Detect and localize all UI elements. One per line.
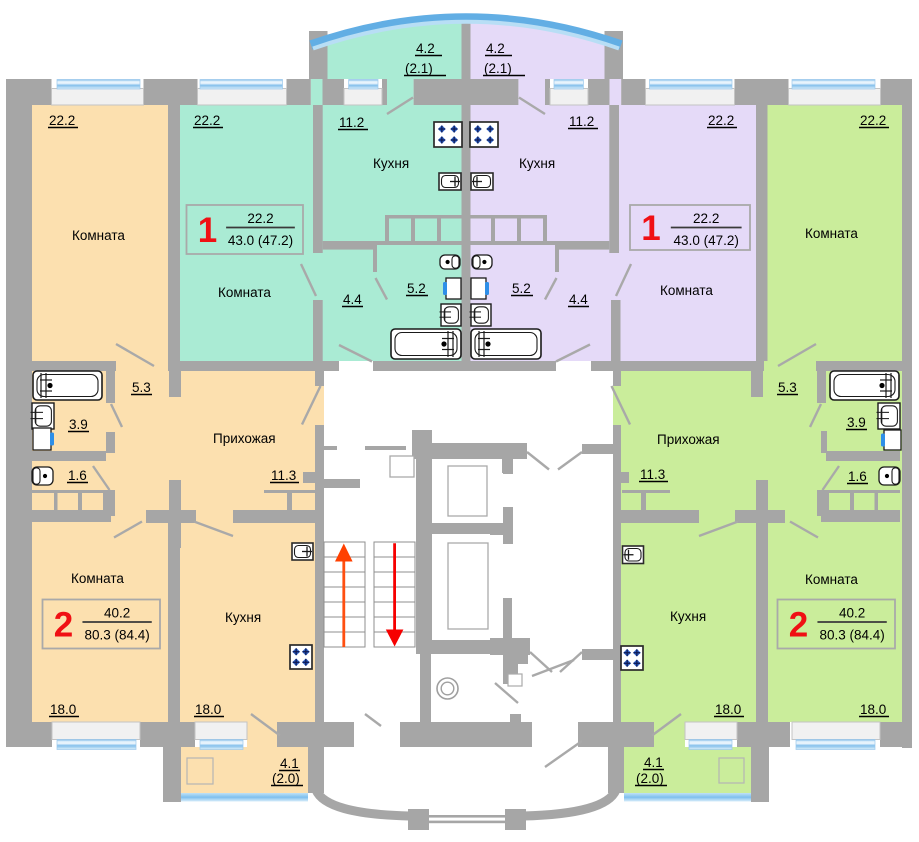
svg-text:18.0: 18.0 bbox=[195, 702, 221, 717]
svg-text:43.0 (47.2): 43.0 (47.2) bbox=[228, 233, 293, 248]
svg-text:4.1: 4.1 bbox=[644, 755, 663, 770]
svg-text:1: 1 bbox=[641, 209, 660, 248]
svg-text:22.2: 22.2 bbox=[693, 211, 719, 226]
svg-text:80.3 (84.4): 80.3 (84.4) bbox=[84, 628, 149, 643]
svg-text:11.3: 11.3 bbox=[640, 467, 665, 482]
svg-text:1.6: 1.6 bbox=[68, 468, 87, 483]
svg-text:40.2: 40.2 bbox=[104, 606, 130, 621]
svg-text:Прихожая: Прихожая bbox=[213, 431, 276, 446]
svg-text:Комната: Комната bbox=[71, 571, 124, 586]
svg-text:Кухня: Кухня bbox=[519, 156, 555, 171]
svg-text:80.3 (84.4): 80.3 (84.4) bbox=[819, 628, 884, 643]
svg-text:4.2: 4.2 bbox=[486, 41, 505, 56]
svg-text:4.4: 4.4 bbox=[569, 292, 588, 307]
svg-text:22.2: 22.2 bbox=[860, 113, 886, 128]
svg-text:Комната: Комната bbox=[72, 228, 125, 243]
svg-text:(2.0): (2.0) bbox=[272, 771, 300, 786]
svg-text:22.2: 22.2 bbox=[49, 113, 75, 128]
svg-text:22.2: 22.2 bbox=[194, 113, 220, 128]
svg-text:43.0 (47.2): 43.0 (47.2) bbox=[674, 233, 739, 248]
svg-text:4.1: 4.1 bbox=[280, 756, 299, 771]
svg-text:18.0: 18.0 bbox=[50, 702, 76, 717]
svg-text:22.2: 22.2 bbox=[247, 211, 273, 226]
svg-text:18.0: 18.0 bbox=[860, 702, 886, 717]
svg-text:(2.0): (2.0) bbox=[636, 771, 664, 786]
svg-text:22.2: 22.2 bbox=[708, 113, 734, 128]
svg-text:11.2: 11.2 bbox=[339, 115, 364, 130]
svg-text:11.3: 11.3 bbox=[271, 468, 296, 483]
svg-text:5.3: 5.3 bbox=[778, 380, 797, 395]
svg-text:Комната: Комната bbox=[218, 285, 271, 300]
svg-text:1.6: 1.6 bbox=[848, 469, 867, 484]
svg-text:(2.1): (2.1) bbox=[405, 61, 433, 76]
svg-text:1: 1 bbox=[198, 211, 217, 250]
svg-text:5.2: 5.2 bbox=[512, 281, 531, 296]
svg-text:(2.1): (2.1) bbox=[484, 61, 512, 76]
svg-text:5.2: 5.2 bbox=[407, 281, 426, 296]
svg-text:Комната: Комната bbox=[805, 226, 858, 241]
svg-text:5.3: 5.3 bbox=[132, 380, 151, 395]
svg-text:18.0: 18.0 bbox=[715, 702, 741, 717]
svg-text:2: 2 bbox=[54, 606, 73, 645]
svg-text:40.2: 40.2 bbox=[839, 606, 865, 621]
svg-text:Кухня: Кухня bbox=[670, 609, 706, 624]
svg-text:Комната: Комната bbox=[660, 283, 713, 298]
svg-text:Комната: Комната bbox=[805, 572, 858, 587]
svg-text:4.2: 4.2 bbox=[416, 41, 435, 56]
svg-text:Кухня: Кухня bbox=[225, 610, 261, 625]
svg-text:11.2: 11.2 bbox=[569, 114, 594, 129]
svg-text:Кухня: Кухня bbox=[373, 156, 409, 171]
svg-text:3.9: 3.9 bbox=[847, 415, 866, 430]
svg-text:3.9: 3.9 bbox=[69, 417, 88, 432]
svg-text:4.4: 4.4 bbox=[343, 292, 362, 307]
svg-text:2: 2 bbox=[789, 606, 808, 645]
svg-text:Прихожая: Прихожая bbox=[657, 432, 720, 447]
